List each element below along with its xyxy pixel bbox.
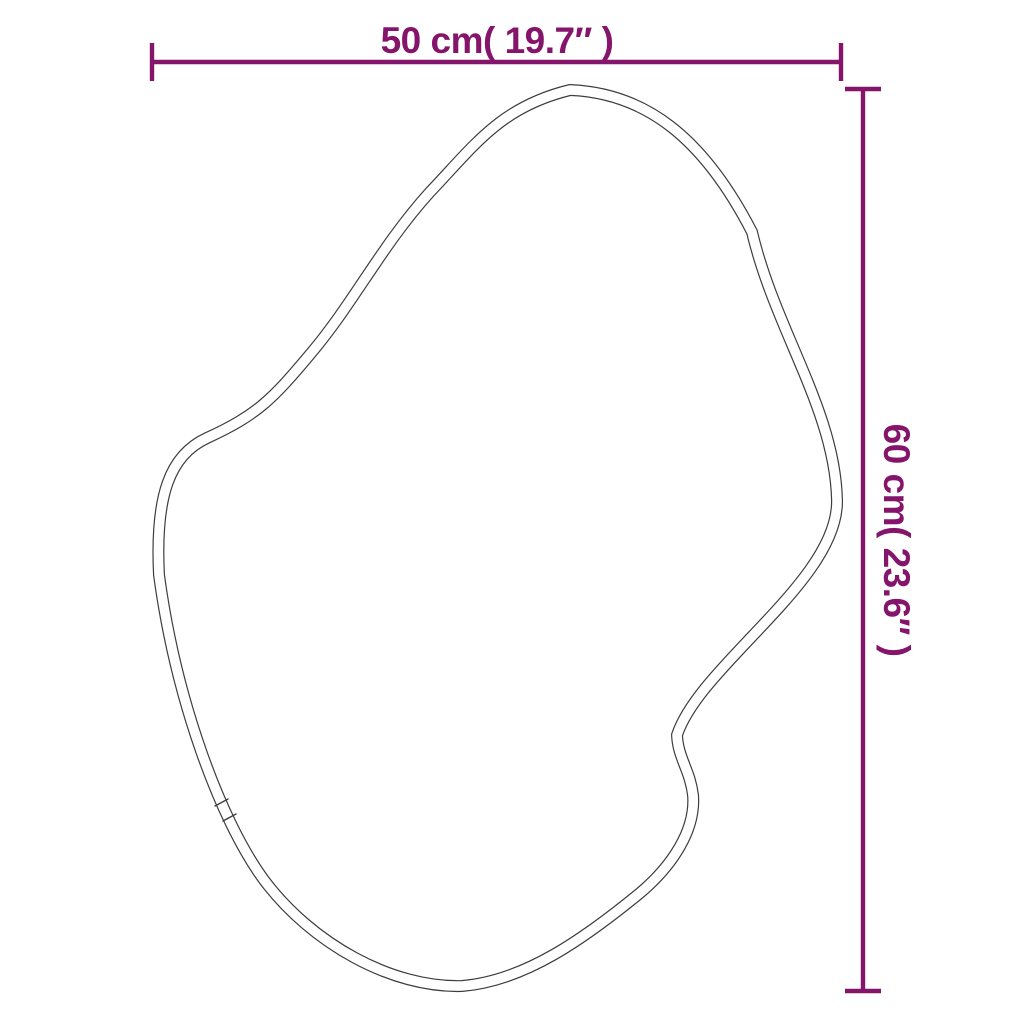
height-dimension: 60 cm( 23.6″ )	[845, 89, 917, 991]
height-dimension-label: 60 cm( 23.6″ )	[876, 424, 917, 657]
mirror-shape	[158, 90, 837, 986]
mirror-outline-outer	[158, 90, 837, 986]
dimension-diagram-svg: 50 cm( 19.7″ ) 60 cm( 23.6″ )	[0, 0, 1024, 1024]
width-dimension: 50 cm( 19.7″ )	[152, 20, 841, 81]
product-diagram-canvas: 50 cm( 19.7″ ) 60 cm( 23.6″ )	[0, 0, 1024, 1024]
width-dimension-label: 50 cm( 19.7″ )	[381, 20, 614, 61]
